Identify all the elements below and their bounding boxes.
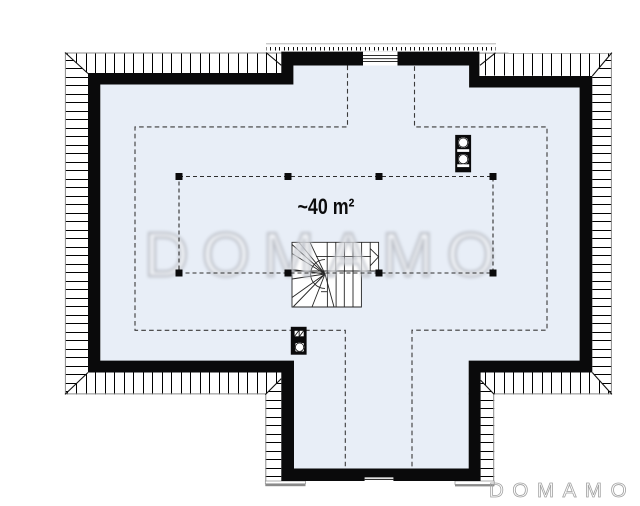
svg-text:DOMAMO: DOMAMO xyxy=(144,221,508,290)
svg-text:~40 m²: ~40 m² xyxy=(298,194,355,219)
svg-text:DOMAMO: DOMAMO xyxy=(489,479,635,502)
